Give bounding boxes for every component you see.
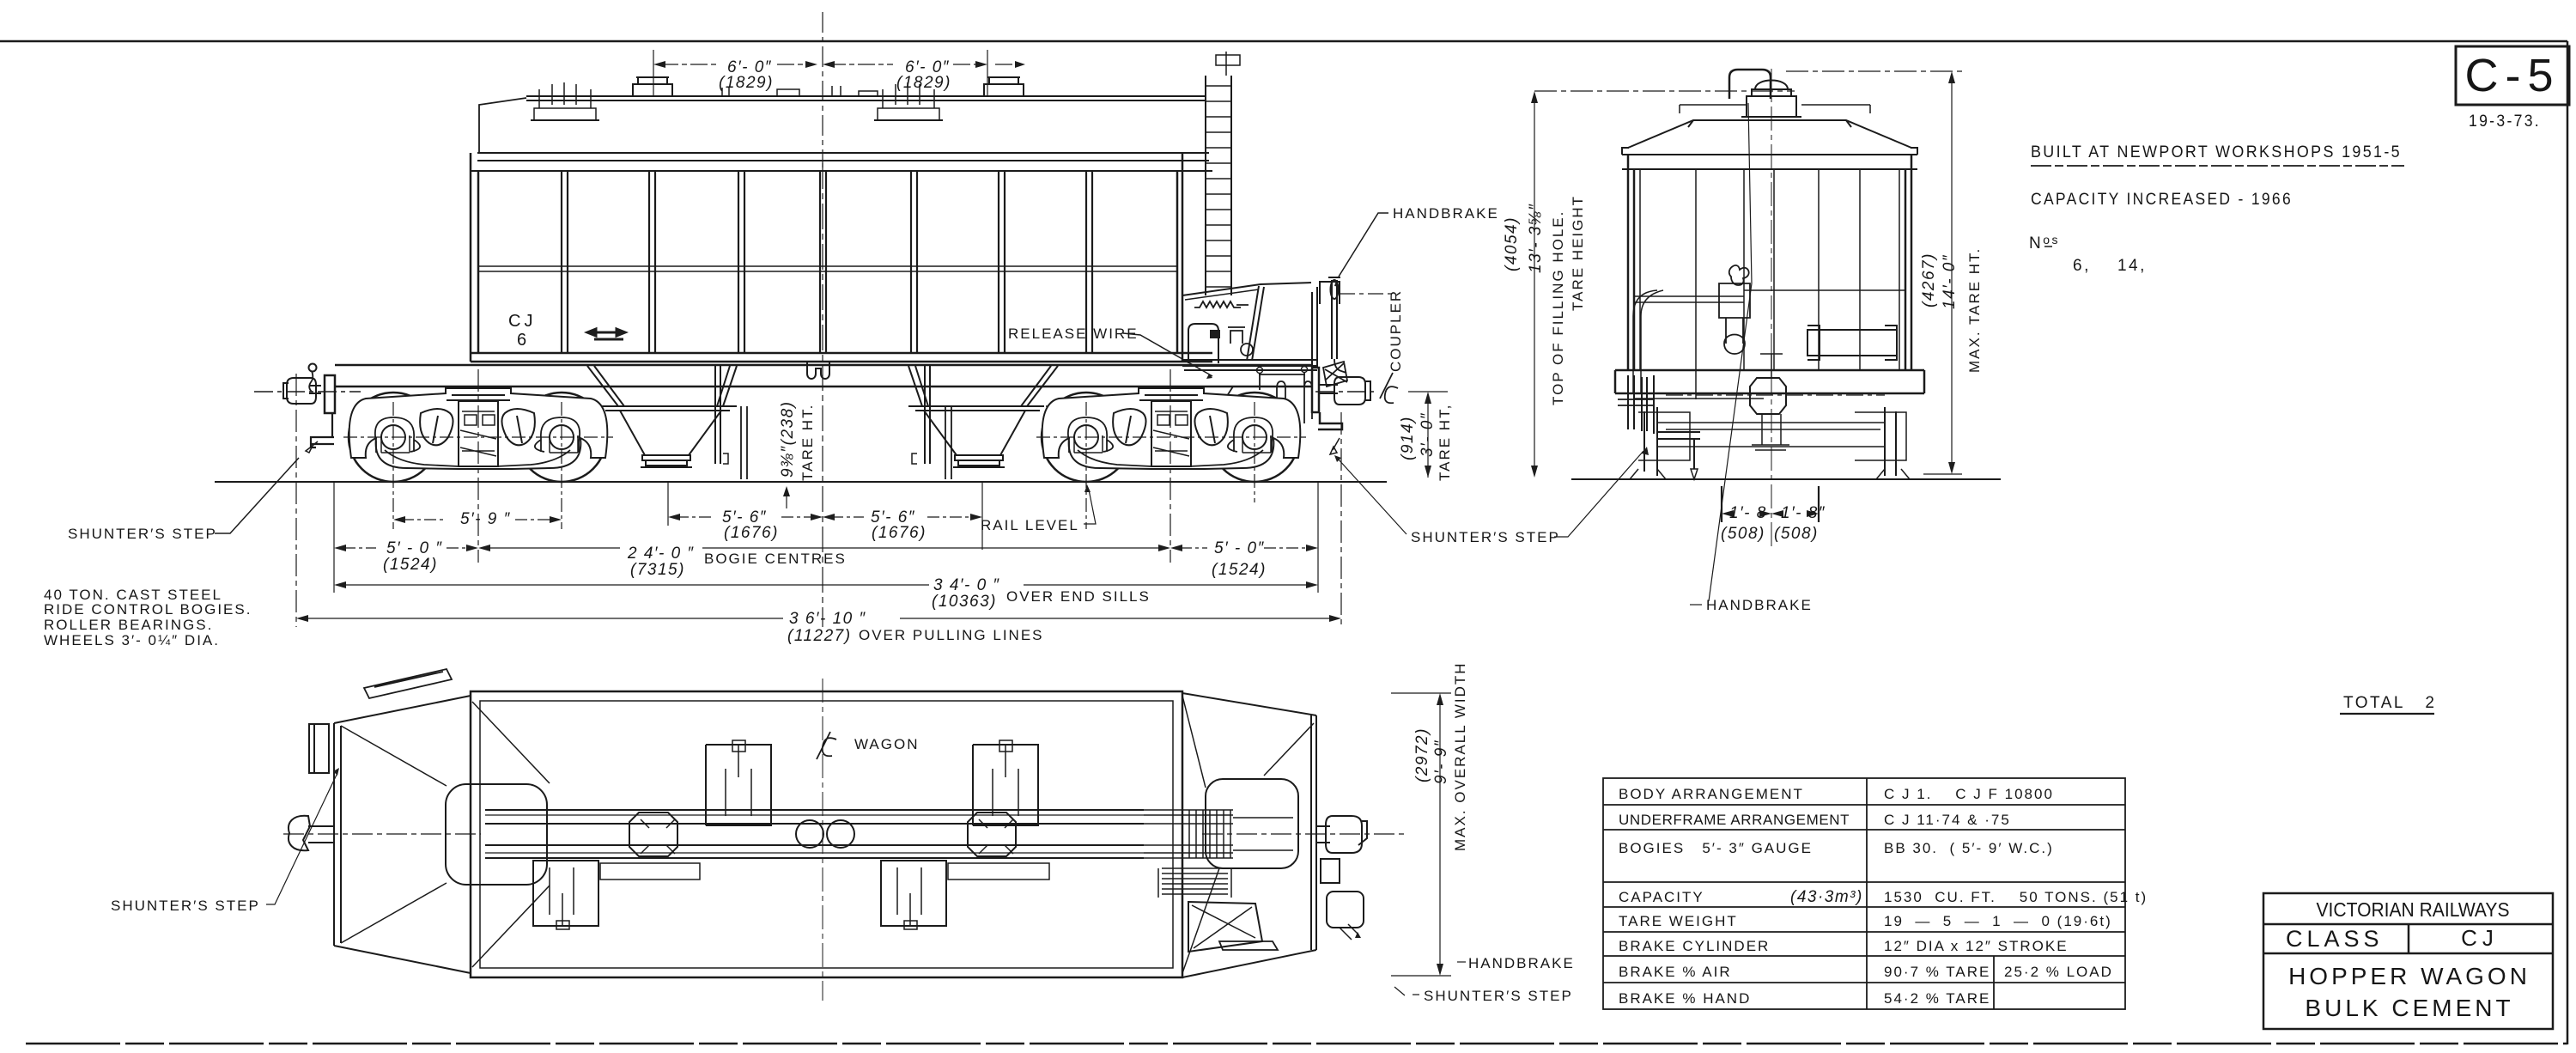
svg-text:BODY ARRANGEMENT: BODY ARRANGEMENT [1619, 786, 1804, 802]
svg-text:WHEELS 3′- 0¼″ DIA.: WHEELS 3′- 0¼″ DIA. [44, 632, 220, 648]
svg-text:3 6′- 10 ″: 3 6′- 10 ″ [789, 610, 866, 628]
svg-text:ROLLER BEARINGS.: ROLLER BEARINGS. [44, 617, 213, 633]
svg-text:CAPACITY INCREASED - 1966: CAPACITY INCREASED - 1966 [2031, 191, 2293, 209]
svg-text:MAX. OVERALL WIDTH: MAX. OVERALL WIDTH [1452, 661, 1468, 851]
svg-text:(2972): (2972) [1413, 727, 1431, 782]
svg-text:(43·3m³): (43·3m³) [1790, 888, 1863, 906]
svg-text:TARE HT,: TARE HT, [1437, 404, 1453, 481]
svg-text:2 4′- 0 ″: 2 4′- 0 ″ [627, 545, 695, 563]
svg-text:(1676): (1676) [724, 524, 779, 542]
svg-text:(1524): (1524) [1212, 561, 1267, 579]
svg-text:CJ: CJ [2461, 925, 2499, 951]
svg-text:BOGIES 5′- 3″ GAUGE: BOGIES 5′- 3″ GAUGE [1619, 840, 1813, 856]
svg-text:BRAKE CYLINDER: BRAKE CYLINDER [1619, 938, 1770, 954]
svg-text:6, 14,: 6, 14, [2073, 257, 2147, 275]
svg-text:BUILT AT NEWPORT WORKSHOPS: BUILT AT NEWPORT WORKSHOPS 1951-5 [2031, 143, 2402, 161]
svg-text:WAGON: WAGON [854, 736, 919, 752]
svg-text:COUPLER: COUPLER [1388, 289, 1404, 372]
svg-text:BRAKE % HAND: BRAKE % HAND [1619, 990, 1751, 1007]
svg-text:OVER END SILLS: OVER END SILLS [1006, 588, 1151, 605]
svg-text:(1524): (1524) [383, 556, 438, 574]
svg-text:13′- 3⅝″: 13′- 3⅝″ [1527, 204, 1545, 273]
svg-text:(508): (508) [1721, 525, 1765, 543]
svg-text:25·2 % LOAD: 25·2 % LOAD [2004, 964, 2113, 980]
svg-text:(1829): (1829) [896, 74, 951, 92]
svg-text:SHUNTER′S STEP: SHUNTER′S STEP [111, 898, 260, 914]
svg-text:(7315): (7315) [630, 561, 685, 579]
svg-text:VICTORIAN RAILWAYS: VICTORIAN RAILWAYS [2317, 898, 2510, 921]
svg-text:CAPACITY: CAPACITY [1619, 889, 1704, 905]
svg-text:90·7 % TARE: 90·7 % TARE [1884, 964, 1990, 980]
svg-text:TARE WEIGHT: TARE WEIGHT [1619, 913, 1738, 929]
svg-text:14′- 0″: 14′- 0″ [1941, 254, 1959, 309]
svg-text:54·2 % TARE: 54·2 % TARE [1884, 990, 1990, 1007]
svg-text:19-3-73.: 19-3-73. [2469, 113, 2541, 131]
svg-text:MAX. TARE HT.: MAX. TARE HT. [1966, 247, 1983, 373]
svg-text:BB 30. ( 5′- 9′ W.C.): BB 30. ( 5′- 9′ W.C.) [1884, 840, 2054, 856]
svg-text:RAIL LEVEL: RAIL LEVEL [981, 517, 1079, 533]
svg-text:BRAKE % AIR: BRAKE % AIR [1619, 964, 1732, 980]
svg-text:1′- 8″: 1′- 8″ [1781, 504, 1826, 522]
svg-text:(10363): (10363) [932, 593, 997, 611]
svg-text:OVER PULLING LINES: OVER PULLING LINES [859, 627, 1044, 643]
svg-text:(4267): (4267) [1920, 253, 1938, 307]
svg-text:C J 1. C J F 10800: C J 1. C J F 10800 [1884, 786, 2054, 802]
svg-text:12″ DIA x 12″ STROKE: 12″ DIA x 12″ STROKE [1884, 938, 2069, 954]
svg-text:1′- 8: 1′- 8 [1729, 504, 1767, 522]
svg-text:TARE HEIGHT: TARE HEIGHT [1570, 195, 1586, 311]
svg-text:HOPPER WAGON: HOPPER WAGON [2288, 963, 2530, 989]
svg-text:BULK CEMENT: BULK CEMENT [2305, 995, 2513, 1021]
svg-text:6: 6 [517, 331, 526, 350]
svg-text:SHUNTER′S STEP: SHUNTER′S STEP [1411, 529, 1560, 545]
svg-text:19 — 5 — 1 — 0 (19·6t): 19 — 5 — 1 — 0 (19·6t) [1884, 913, 2112, 929]
svg-text:3′- 0″: 3′- 0″ [1419, 412, 1437, 457]
svg-text:SHUNTER′S STEP: SHUNTER′S STEP [68, 526, 217, 542]
svg-text:RIDE CONTROL BOGIES.: RIDE CONTROL BOGIES. [44, 601, 252, 618]
svg-text:CLASS: CLASS [2286, 926, 2384, 952]
svg-text:(914): (914) [1399, 416, 1417, 460]
svg-text:(11227): (11227) [787, 627, 852, 645]
svg-text:HANDBRAKE: HANDBRAKE [1468, 955, 1575, 971]
svg-text:5′ - 0 ″: 5′ - 0 ″ [386, 539, 443, 557]
svg-text:3 4′- 0 ″: 3 4′- 0 ″ [933, 576, 1000, 594]
svg-text:(1829): (1829) [719, 74, 774, 92]
svg-text:C J 11·74 & ·75: C J 11·74 & ·75 [1884, 812, 2011, 828]
svg-text:CJ: CJ [508, 312, 536, 331]
svg-text:(508): (508) [1774, 525, 1819, 543]
svg-text:1530 CU. FT. 50 TONS. (51: 1530 CU. FT. 50 TONS. (51 t) [1884, 889, 2148, 905]
svg-text:C-5: C-5 [2464, 50, 2560, 101]
svg-text:9′- 9″: 9′- 9″ [1432, 740, 1450, 784]
svg-text:(4054): (4054) [1503, 216, 1521, 271]
svg-text:UNDERFRAME ARRANGEMENT: UNDERFRAME ARRANGEMENT [1619, 812, 1850, 828]
svg-text:(1676): (1676) [872, 524, 927, 542]
svg-text:5′- 9 ″: 5′- 9 ″ [460, 510, 511, 528]
svg-text:SHUNTER′S STEP: SHUNTER′S STEP [1424, 988, 1573, 1004]
svg-text:TOP OF FILLING HOLE.: TOP OF FILLING HOLE. [1550, 210, 1566, 405]
svg-text:RELEASE WIRE: RELEASE WIRE [1008, 326, 1139, 342]
svg-text:HANDBRAKE: HANDBRAKE [1393, 205, 1499, 222]
svg-text:5′ - 0″: 5′ - 0″ [1214, 539, 1265, 557]
svg-text:TARE HT.: TARE HT. [799, 404, 816, 481]
svg-text:HANDBRAKE: HANDBRAKE [1706, 597, 1813, 613]
svg-text:TOTAL 2: TOTAL 2 [2343, 694, 2436, 712]
svg-text:BOGIE CENTRES: BOGIE CENTRES [704, 551, 847, 567]
svg-text:9⅜″(238): 9⅜″(238) [779, 401, 797, 478]
